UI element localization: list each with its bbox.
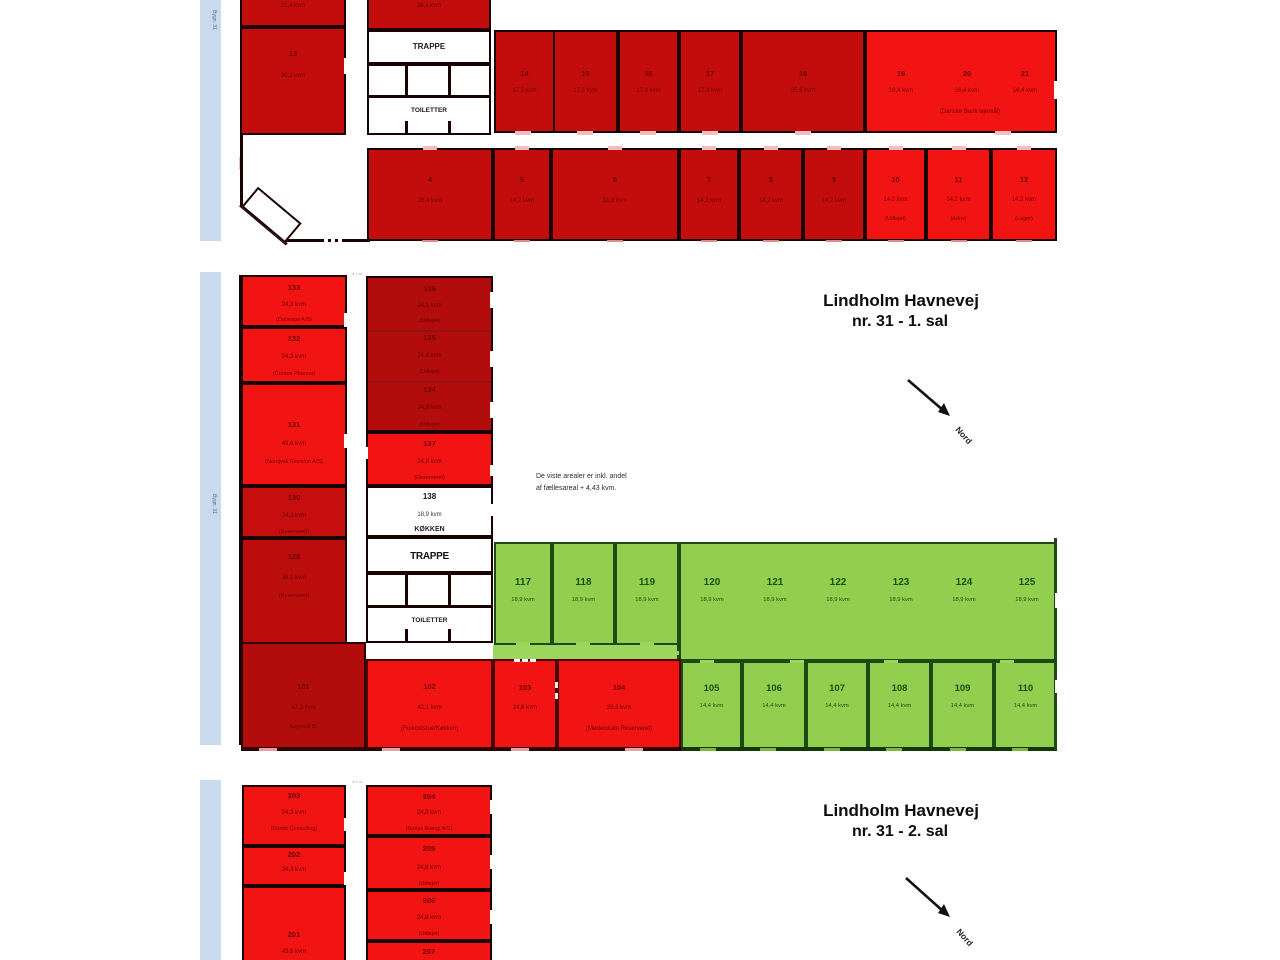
svg-text:Nord: Nord — [954, 425, 975, 446]
svg-text:Nord: Nord — [955, 927, 976, 948]
